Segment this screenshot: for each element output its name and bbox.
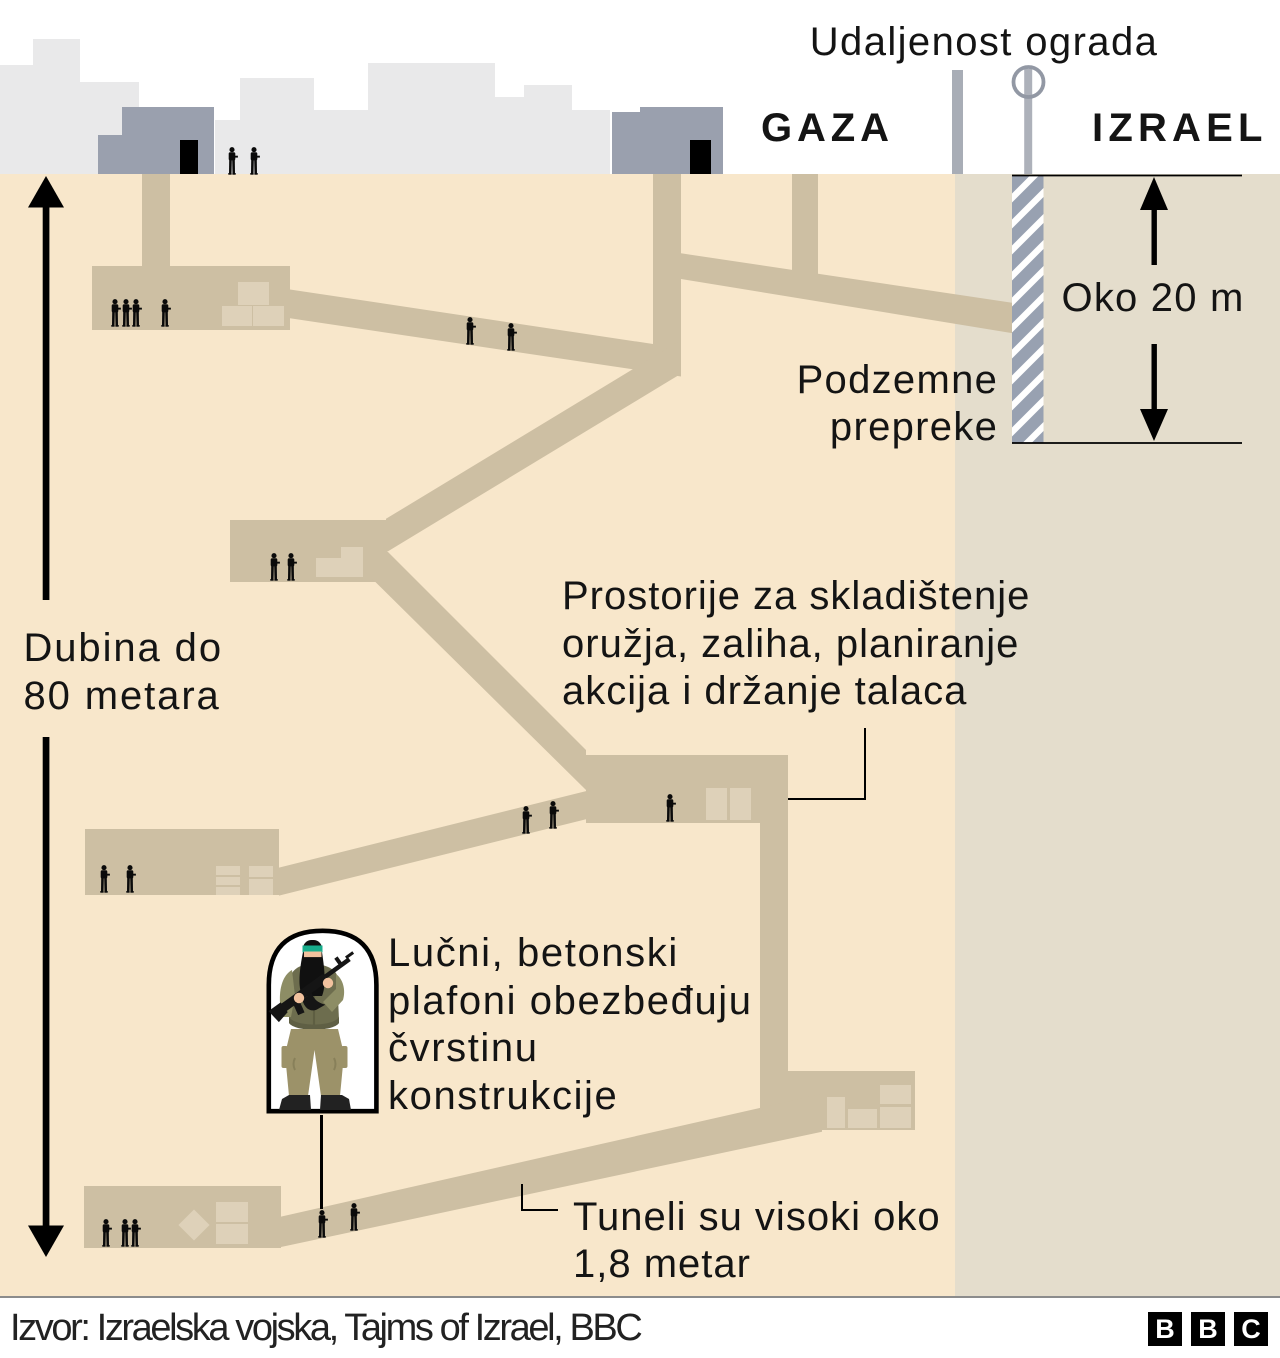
svg-text:B: B (1155, 1314, 1175, 1344)
svg-text:C: C (1241, 1314, 1261, 1344)
svg-text:B: B (1198, 1314, 1218, 1344)
